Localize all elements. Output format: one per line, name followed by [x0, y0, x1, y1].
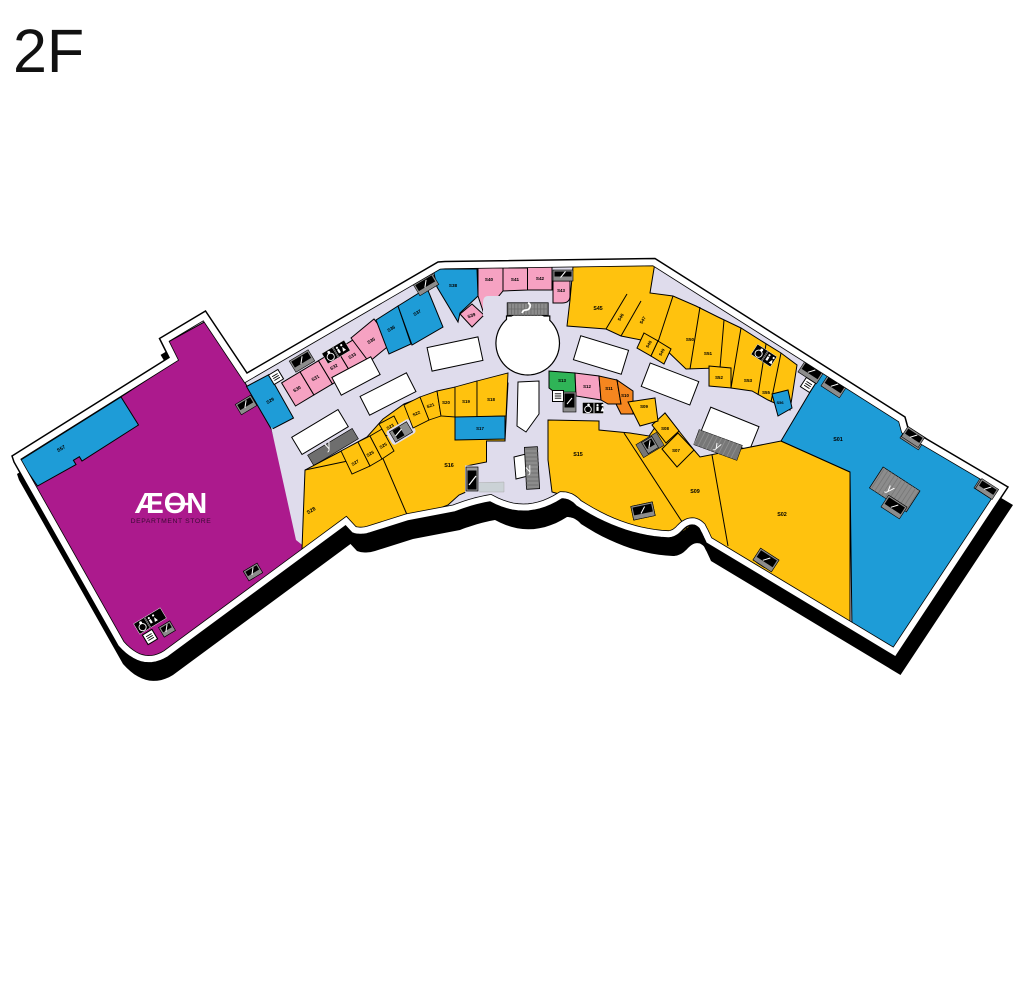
svg-text:S53: S53 [744, 378, 753, 383]
svg-text:S07: S07 [672, 448, 680, 453]
svg-text:2F: 2F [13, 17, 84, 85]
svg-text:S13: S13 [558, 378, 566, 383]
svg-text:S10: S10 [621, 393, 629, 398]
svg-text:S20: S20 [442, 400, 450, 405]
svg-text:S02: S02 [777, 512, 787, 518]
svg-text:S43: S43 [557, 288, 565, 293]
svg-text:DEPARTMENT STORE: DEPARTMENT STORE [131, 518, 212, 525]
svg-text:S55: S55 [762, 390, 770, 395]
svg-text:S42: S42 [536, 276, 545, 281]
svg-text:S38: S38 [449, 283, 458, 288]
svg-text:S41: S41 [511, 277, 520, 282]
svg-text:S12: S12 [583, 384, 591, 389]
svg-text:S18: S18 [487, 397, 495, 402]
svg-text:S16: S16 [444, 463, 454, 469]
svg-text:S52: S52 [715, 375, 723, 380]
svg-text:S51: S51 [704, 351, 713, 356]
svg-text:S40: S40 [485, 277, 494, 282]
svg-text:S50: S50 [686, 337, 695, 342]
svg-text:S19: S19 [462, 399, 470, 404]
svg-text:S09: S09 [690, 489, 700, 495]
svg-text:S45: S45 [593, 306, 602, 312]
svg-text:S01: S01 [833, 437, 843, 443]
svg-text:S11: S11 [605, 386, 613, 391]
svg-text:S09: S09 [640, 404, 648, 409]
svg-text:S17: S17 [476, 426, 484, 431]
svg-text:S56: S56 [776, 400, 784, 405]
svg-text:S15: S15 [573, 452, 583, 458]
svg-text:S08: S08 [661, 426, 669, 431]
